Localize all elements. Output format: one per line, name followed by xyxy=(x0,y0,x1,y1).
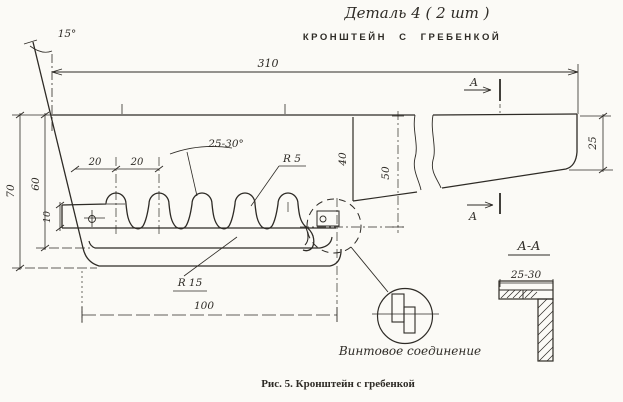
dim-20a-label: 20 xyxy=(88,157,102,168)
bracket-with-comb-drawing: Деталь 4 ( 2 шт ) КРОНШТЕЙН С ГРЕБЕНКОЙ … xyxy=(0,0,623,402)
scanned-technical-drawing-page: Деталь 4 ( 2 шт ) КРОНШТЕЙН С ГРЕБЕНКОЙ … xyxy=(0,0,623,402)
dim-60-label: 60 xyxy=(30,177,42,191)
section-profile xyxy=(499,281,553,361)
dim-25-label: 25 xyxy=(587,136,599,151)
screw-note: Винтовое соединение xyxy=(338,344,481,358)
right-flange-piece: 25 xyxy=(432,113,613,188)
bracket-outline xyxy=(33,42,421,266)
drawing-title-handwritten: Деталь 4 ( 2 шт ) xyxy=(343,4,489,22)
break-line-right xyxy=(432,115,441,188)
tooth-radius-annotation: R 5 xyxy=(251,153,306,206)
section-hatching xyxy=(501,290,553,361)
detail-screw-part-2 xyxy=(404,307,415,333)
figure-caption: Рис. 5. Кронштейн с гребенкой xyxy=(261,378,415,390)
dim-20b-label: 20 xyxy=(130,157,144,168)
detail-circle xyxy=(378,289,433,344)
r15-label: R 15 xyxy=(177,277,203,289)
slot-angle-annotation: 25-30° xyxy=(170,138,244,196)
section-letter-bottom: A xyxy=(468,210,477,223)
dim-comb-length: 100 xyxy=(82,271,337,325)
dim-50-label: 50 xyxy=(380,166,392,180)
dim-100-label: 100 xyxy=(194,300,214,312)
break-line-left xyxy=(414,115,421,190)
section-title: А-А xyxy=(516,238,540,253)
r5-label: R 5 xyxy=(282,153,301,165)
section-aa-view: А-А 25-30 xyxy=(499,238,553,361)
screw-detail-callout: Винтовое соединение xyxy=(307,199,481,358)
main-view: 310 15° xyxy=(5,28,613,358)
section-cut-marks: A A xyxy=(464,76,500,223)
drawing-subtitle-typed: КРОНШТЕЙН С ГРЕБЕНКОЙ xyxy=(303,31,501,43)
base-radius-annotation: R 15 xyxy=(173,237,237,291)
section-letter-top: A xyxy=(469,76,478,89)
dim-10-label: 10 xyxy=(42,211,53,223)
pitch-dimensions: 20 20 xyxy=(71,157,163,172)
mid-dimensions: 40 50 xyxy=(337,111,404,233)
slot-angle-label: 25-30° xyxy=(207,138,244,150)
section-width-label: 25-30 xyxy=(510,269,542,281)
dim-40-label: 40 xyxy=(337,152,349,167)
detail-screw-part-1 xyxy=(392,294,404,322)
angle-15-label: 15° xyxy=(58,28,77,40)
dim-70-label: 70 xyxy=(5,184,17,198)
dim-310-label: 310 xyxy=(258,57,279,70)
